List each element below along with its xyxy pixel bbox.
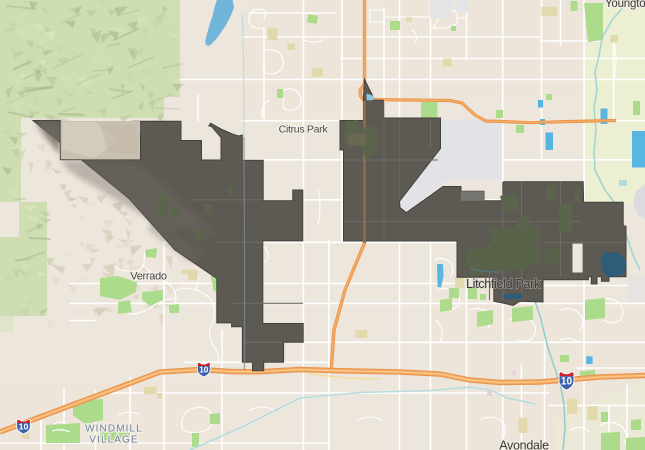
svg-text:WINDMILL: WINDMILL — [85, 424, 143, 435]
svg-text:Avondale: Avondale — [499, 439, 549, 450]
svg-text:Citrus Park: Citrus Park — [279, 124, 329, 136]
svg-text:10: 10 — [19, 422, 29, 432]
svg-text:10: 10 — [199, 366, 209, 375]
svg-text:10: 10 — [561, 375, 572, 388]
svg-text:Verrado: Verrado — [130, 270, 167, 282]
svg-text:Youngtown: Youngtown — [605, 0, 645, 10]
svg-text:Litchfield Park: Litchfield Park — [466, 277, 541, 291]
svg-text:VILLAGE: VILLAGE — [89, 435, 138, 446]
